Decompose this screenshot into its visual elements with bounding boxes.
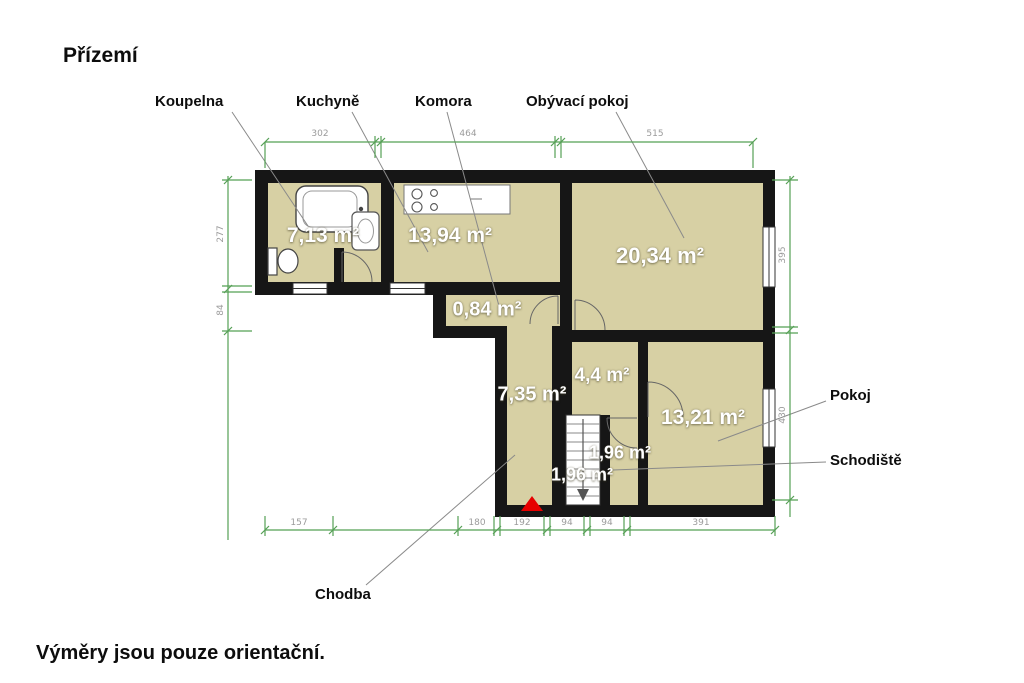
dim-top-3: 515	[646, 129, 663, 139]
area-obyvaci-pokoj: 20,34 m²	[616, 243, 704, 269]
dim-right-1: 395	[778, 246, 788, 263]
dim-top-2: 464	[459, 129, 476, 139]
area-hala: 4,4 m²	[575, 365, 630, 387]
area-chodba: 7,35 m²	[498, 384, 567, 407]
area-pokoj: 13,21 m²	[661, 406, 745, 430]
area-komora: 0,84 m²	[453, 299, 522, 322]
floor-plan-page: Přízemí Výměry jsou pouze orientační.	[0, 0, 1024, 683]
label-chodba: Chodba	[315, 586, 371, 603]
dim-bottom-2: 180	[468, 518, 485, 528]
dim-bottom-6: 391	[692, 518, 709, 528]
label-kuchyne: Kuchyně	[296, 93, 359, 110]
dim-bottom-4: 94	[561, 518, 572, 528]
door-icon	[342, 252, 683, 448]
label-komora: Komora	[415, 93, 472, 110]
toilet-icon	[268, 248, 298, 275]
dim-bottom-5: 94	[601, 518, 612, 528]
area-schodiste: 1,96 m²	[589, 443, 651, 464]
label-obyvaci-pokoj: Obývací pokoj	[526, 93, 629, 110]
area-kuchyne: 13,94 m²	[408, 224, 492, 248]
area-koupelna: 7,13 m²	[287, 224, 359, 248]
plan-graphics	[0, 0, 1024, 683]
label-pokoj: Pokoj	[830, 387, 871, 404]
stove-icon	[404, 185, 510, 214]
dim-top-1: 302	[311, 129, 328, 139]
dim-left-2: 84	[216, 304, 226, 315]
dim-bottom-3: 192	[513, 518, 530, 528]
leader-lines	[232, 112, 826, 585]
label-koupelna: Koupelna	[155, 93, 223, 110]
entrance-triangle-icon	[521, 496, 543, 511]
area-schodiste-2: 1,96 m²	[551, 465, 613, 486]
label-schodiste: Schodiště	[830, 452, 902, 469]
dim-right-2: 430	[778, 406, 788, 423]
dim-bottom-1: 157	[290, 518, 307, 528]
dim-left-1: 277	[216, 225, 226, 242]
